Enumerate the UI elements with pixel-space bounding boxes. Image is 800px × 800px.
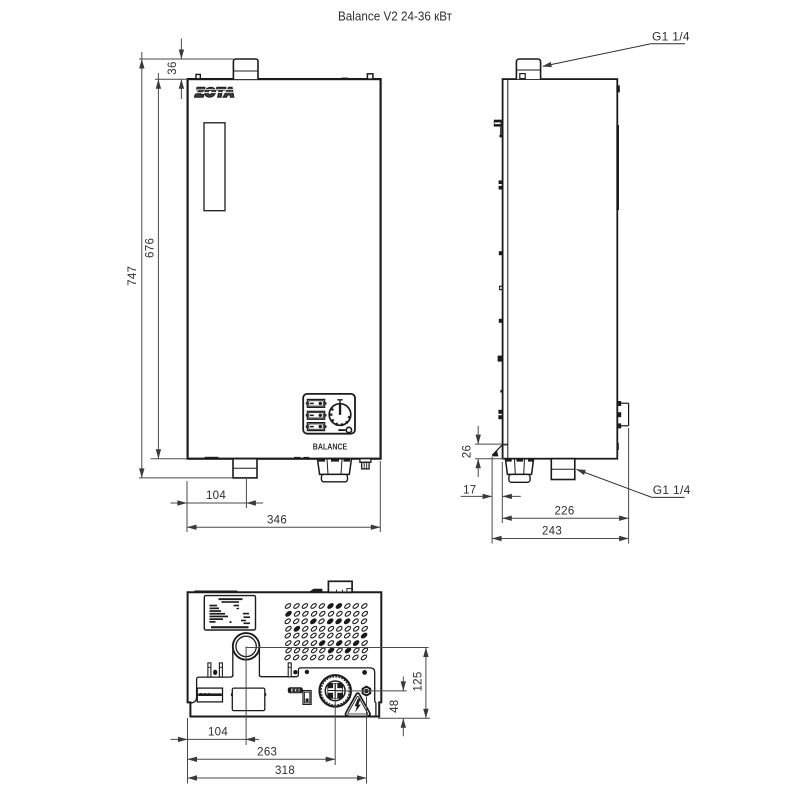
svg-text:125: 125	[413, 671, 425, 691]
svg-text:318: 318	[275, 765, 295, 777]
svg-text:676: 676	[145, 238, 157, 258]
svg-text:104: 104	[208, 727, 228, 739]
svg-text:747: 747	[127, 266, 139, 286]
svg-text:Balance V2 24-36 кВт: Balance V2 24-36 кВт	[338, 9, 452, 24]
svg-text:36: 36	[167, 61, 179, 74]
svg-text:48: 48	[389, 699, 401, 712]
svg-text:263: 263	[257, 747, 277, 759]
svg-text:346: 346	[267, 514, 287, 526]
svg-text:226: 226	[554, 505, 574, 517]
svg-text:G1 1/4: G1 1/4	[653, 483, 691, 497]
svg-text:104: 104	[206, 490, 226, 502]
svg-text:243: 243	[542, 526, 562, 538]
svg-text:G1 1/4: G1 1/4	[652, 29, 690, 43]
svg-text:17: 17	[463, 485, 476, 497]
svg-text:BALANCE: BALANCE	[313, 443, 348, 452]
svg-text:26: 26	[462, 445, 474, 458]
